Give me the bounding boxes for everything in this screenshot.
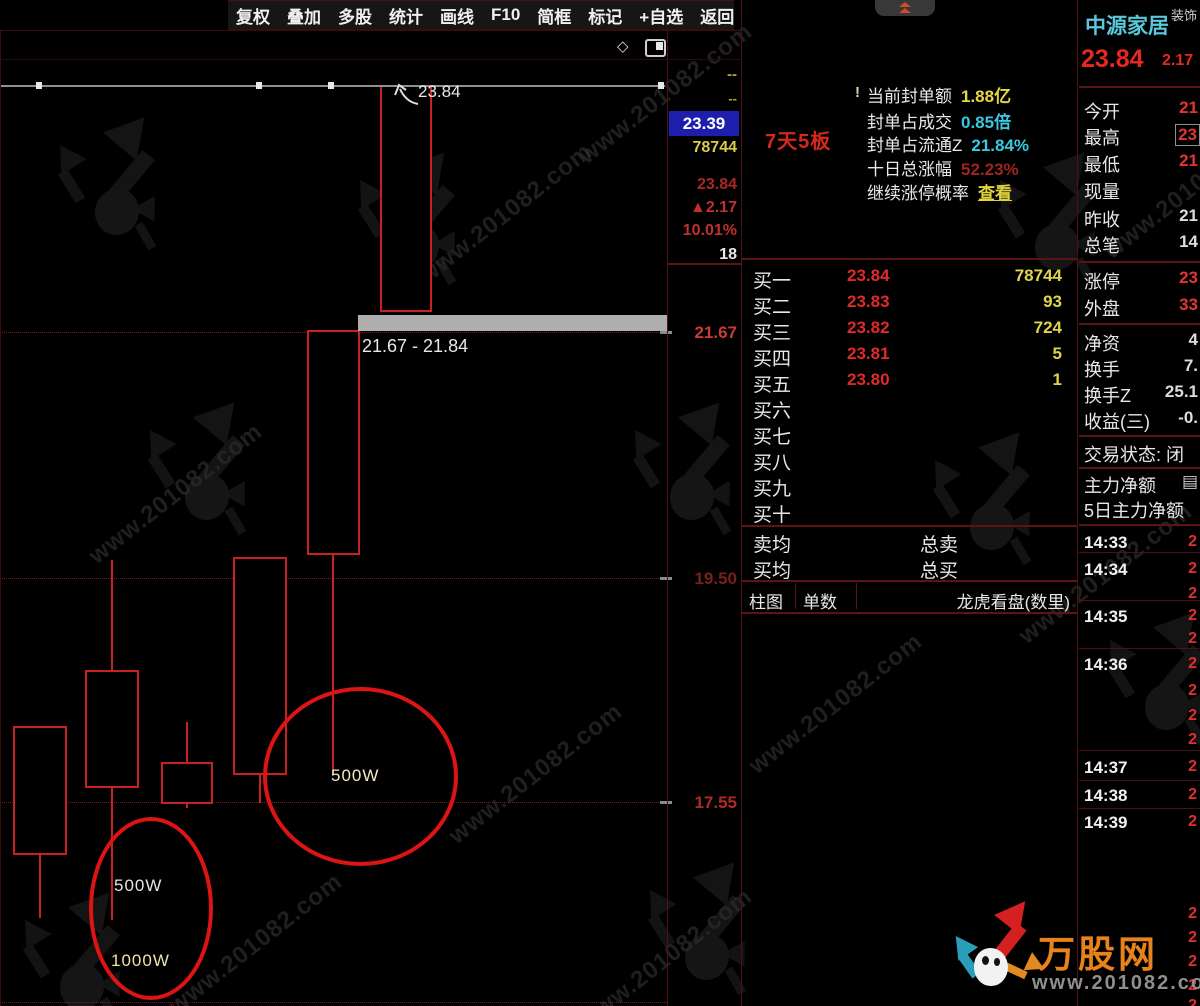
order-price: 23.82 [847,318,890,338]
order-volume: 724 [1034,318,1062,338]
tick-row[interactable]: 2 [1078,630,1200,654]
quote-value: 23 [1179,268,1198,288]
panel-border [0,30,1,1006]
info-label: 封单占成交 [867,113,952,132]
order-level-label: 买七 [753,422,791,449]
divider [742,580,1078,582]
quote-row-收益(三): 收益(三)-0. [1078,408,1200,432]
order-level-label: 买五 [753,370,791,397]
quote-label: 外盘 [1084,295,1120,321]
tab-order-count[interactable]: 单数 [803,588,837,613]
order-price: 23.81 [847,344,890,364]
strip-change: ▲2.17 [690,199,737,217]
candle-body[interactable] [307,330,360,555]
quote-value: 25.1 [1165,382,1198,402]
strip-price: 23.84 [697,176,737,194]
order-level-label: 买一 [753,266,791,293]
strip-count: 18 [719,246,737,264]
order-price: 23.80 [847,370,890,390]
tick-separator [1079,780,1200,781]
quote-label: 交易状态: 闭 [1084,441,1184,467]
collapse-panel-tab[interactable] [875,0,935,16]
site-logo-title: 万股网 [1038,924,1158,978]
order-book-panel: ! 7天5板 当前封单额1.88亿封单占成交0.85倍封单占流通Z21.84%十… [742,0,1078,1006]
tick-price: 2 [1188,731,1197,749]
quote-divider [1079,323,1200,325]
quote-value: 14 [1179,232,1198,252]
volume-annotation: 1000W [111,951,170,971]
tick-price: 2 [1188,607,1197,625]
tick-time: 14:36 [1084,655,1127,675]
menu-item-返回[interactable]: 返回 [700,3,734,28]
logo-mascot-icon [994,958,1000,966]
price-change: 2.17 [1162,52,1193,70]
quote-value: ▤ [1182,472,1198,492]
panel-border [1077,0,1078,1006]
order-row-买八[interactable]: 买八 [742,448,1078,474]
info-value: 1.88亿 [961,87,1011,106]
order-row-买十[interactable]: 买十 [742,500,1078,526]
axis-tick [660,577,672,580]
total-sell-label: 总卖 [920,530,958,557]
quote-panel: 中源家居 装饰 23.84 2.17 今开21最高23最低21现量昨收21总笔1… [1078,0,1200,1006]
quote-value: 33 [1179,295,1198,315]
quote-divider [1079,467,1200,469]
tick-row[interactable]: 14:372 [1078,758,1200,782]
menu-item-+自选[interactable]: +自选 [639,3,683,28]
order-level-label: 买八 [753,448,791,475]
quote-label: 5日主力净额 [1084,497,1184,523]
info-row-继续涨停概率: 继续涨停概率查看 [867,179,1012,204]
tick-time: 14:35 [1084,607,1127,627]
tick-price: 2 [1188,758,1197,776]
quote-value: 21 [1179,206,1198,226]
info-label: 当前封单额 [867,87,952,106]
tick-price: 2 [1188,813,1197,831]
order-level-label: 买三 [753,318,791,345]
info-label: 继续涨停概率 [867,184,969,203]
panel-border [741,0,742,1006]
quote-divider [1079,435,1200,437]
divider [742,258,1078,260]
tick-price: 2 [1188,682,1197,700]
order-row-买三[interactable]: 买三23.82724 [742,318,1078,344]
order-row-买二[interactable]: 买二23.8393 [742,292,1078,318]
tick-row[interactable]: 14:342 [1078,560,1200,584]
strip-dash-2: -- [728,91,737,106]
quote-row-昨收: 昨收21 [1078,206,1200,230]
order-row-买七[interactable]: 买七 [742,422,1078,448]
quote-row-外盘: 外盘33 [1078,295,1200,319]
axis-tick [660,801,672,804]
quote-label: 最高 [1084,124,1120,150]
quote-label: 收益(三) [1084,408,1150,434]
diamond-icon[interactable]: ◇ [617,37,629,55]
quote-label: 最低 [1084,151,1120,177]
strip-dash-1: -- [727,66,737,83]
quote-row-涨停: 涨停23 [1078,268,1200,292]
tick-price: 2 [1188,707,1197,725]
quote-row-最低: 最低21 [1078,151,1200,175]
quote-label: 涨停 [1084,268,1120,294]
menu-item-F10[interactable]: F10 [491,5,520,25]
line-handle[interactable] [256,82,262,89]
site-logo: 万股网 www.201082.com [938,896,1200,1006]
price-zone-label: 21.67 - 21.84 [362,336,468,357]
quote-value: 23 [1175,124,1200,146]
order-price: 23.83 [847,292,890,312]
divider [742,612,1078,614]
tab-divider [856,583,857,609]
quote-row-换手Z: 换手Z25.1 [1078,382,1200,406]
logo-arrow-teal-icon [946,929,978,961]
order-volume: 78744 [1015,266,1062,286]
quote-divider [1079,524,1200,526]
tick-separator [1079,600,1200,601]
last-price: 23.84 [1081,45,1144,74]
menu-item-叠加[interactable]: 叠加 [287,3,321,28]
order-row-买四[interactable]: 买四23.815 [742,344,1078,370]
info-value: 52.23% [961,160,1019,179]
logo-mascot-icon [982,956,989,965]
tick-time: 14:33 [1084,533,1127,553]
axis-price-label: 21.67 [694,323,737,343]
quote-label: 现量 [1084,178,1120,204]
industry-suffix: 装饰 [1171,5,1197,24]
quote-row-现量: 现量 [1078,178,1200,202]
line-handle[interactable] [36,82,42,89]
info-label: 封单占流通Z [867,136,962,155]
quote-value: 21 [1179,98,1198,118]
tick-separator [1079,750,1200,751]
order-volume: 5 [1053,344,1062,364]
quote-label: 换手Z [1084,382,1131,408]
order-level-label: 买四 [753,344,791,371]
tick-price: 2 [1188,533,1197,551]
quote-divider [1079,86,1200,88]
axis-price-label: 19.50 [694,569,737,589]
quote-row-净资: 净资4 [1078,330,1200,354]
info-value: 21.84% [971,136,1029,155]
tick-row[interactable]: 14:382 [1078,786,1200,810]
quote-label: 总笔 [1084,232,1120,258]
tick-price: 2 [1188,630,1197,648]
tick-row[interactable]: 14:392 [1078,813,1200,837]
line-handle[interactable] [658,82,664,89]
quote-row-换手: 换手7. [1078,356,1200,380]
tick-price: 2 [1188,560,1197,578]
menu-item-多股[interactable]: 多股 [338,3,372,28]
menu-item-画线[interactable]: 画线 [440,3,474,28]
candlestick-chart[interactable]: 23.84 21.67 - 21.84 500W 500W 1000W [0,30,667,1006]
quote-label: 今开 [1084,98,1120,124]
menu-item-复权[interactable]: 复权 [236,3,270,28]
tick-separator [1079,808,1200,809]
highlighted-price[interactable]: 23.39 [669,111,739,136]
line-handle[interactable] [328,82,334,89]
candle-body[interactable] [380,85,432,312]
divider [742,525,1078,527]
split-view-icon[interactable] [645,39,666,57]
order-level-label: 买九 [753,474,791,501]
quote-value: -0. [1178,408,1198,428]
order-level-label: 买十 [753,500,791,527]
quote-row-主力净额: 主力净额▤ [1078,472,1200,496]
tab-divider [795,583,796,609]
tick-time: 14:37 [1084,758,1127,778]
menu-item-简框[interactable]: 简框 [537,3,571,28]
menu-item-统计[interactable]: 统计 [389,3,423,28]
axis-price-label: 17.55 [694,793,737,813]
toolbar-bottom-border [0,30,742,31]
info-value: 0.85倍 [961,113,1011,132]
quote-value: 21 [1179,151,1198,171]
stock-name[interactable]: 中源家居 [1085,10,1169,40]
tick-row[interactable]: 14:332 [1078,533,1200,557]
quote-row-5日主力净额: 5日主力净额 [1078,497,1200,521]
candle-body[interactable] [161,762,213,804]
quote-divider [1079,261,1200,263]
order-row-买一[interactable]: 买一23.8478744 [742,266,1078,292]
tick-row[interactable]: 2 [1078,682,1200,706]
order-row-买五[interactable]: 买五23.801 [742,370,1078,396]
quote-label: 净资 [1084,330,1120,356]
candle-body[interactable] [13,726,67,855]
trading-app-window: www.201082.comwww.201082.comwww.201082.c… [0,0,1200,1006]
info-row-十日总涨幅: 十日总涨幅52.23% [867,155,1019,180]
tick-separator [1079,648,1200,649]
info-value[interactable]: 查看 [978,184,1012,203]
price-annotation-label: 23.84 [418,82,461,102]
tick-price: 2 [1188,655,1197,673]
tick-row[interactable]: 14:352 [1078,607,1200,631]
menu-item-标记[interactable]: 标记 [588,3,622,28]
volume-annotation: 500W [114,876,162,896]
tick-price: 2 [1188,786,1197,804]
tick-row[interactable]: 2 [1078,707,1200,731]
tick-separator [1079,552,1200,553]
quote-label: 昨收 [1084,206,1120,232]
strip-change-pct: 10.01% [683,222,737,240]
volume-annotation: 500W [331,766,379,786]
alert-icon: ! [855,84,860,101]
info-row-当前封单额: 当前封单额1.88亿 [867,82,1011,107]
tick-time: 14:39 [1084,813,1127,833]
tab-dragon-tiger[interactable]: 龙虎看盘(数里) [957,588,1070,613]
info-row-封单占流通Z: 封单占流通Z21.84% [867,131,1029,156]
tick-row[interactable]: 14:362 [1078,655,1200,679]
order-price: 23.84 [847,266,890,286]
logo-mascot-icon [974,948,1008,986]
order-volume: 93 [1043,292,1062,312]
candle-body[interactable] [85,670,139,788]
total-buy-label: 总买 [920,556,958,583]
tick-row[interactable]: 2 [1078,731,1200,755]
quote-row-总笔: 总笔14 [1078,232,1200,256]
logo-arrow-red-icon [994,891,1038,934]
panel-border [667,30,668,1006]
tab-bar-chart[interactable]: 柱图 [749,588,783,613]
quote-row-交易状态: 闭: 交易状态: 闭 [1078,441,1200,465]
drawn-circle-small[interactable] [89,817,213,1000]
limit-up-streak-badge: 7天5板 [765,125,831,154]
quote-value: 7. [1184,356,1198,376]
chevron-up-icon [899,8,911,13]
price-zone-bar[interactable] [358,315,667,331]
quote-value: 4 [1189,330,1198,350]
quote-label: 换手 [1084,356,1120,382]
axis-tick [660,331,672,334]
site-logo-url: www.201082.com [1032,972,1200,995]
quote-label: 主力净额 [1084,472,1156,498]
tick-time: 14:38 [1084,786,1127,806]
quote-row-今开: 今开21 [1078,98,1200,122]
info-row-封单占成交: 封单占成交0.85倍 [867,108,1011,133]
chevron-up-icon [899,2,911,7]
order-level-label: 买六 [753,396,791,423]
chart-gridline [0,1002,667,1003]
order-level-label: 买二 [753,292,791,319]
tick-row[interactable]: 2 [1078,585,1200,609]
order-row-买六[interactable]: 买六 [742,396,1078,422]
strip-divider [667,263,742,265]
buy-avg-label: 买均 [753,556,791,583]
quote-row-最高: 最高23 [1078,124,1200,148]
sell-avg-label: 卖均 [753,530,791,557]
info-label: 十日总涨幅 [867,160,952,179]
tick-time: 14:34 [1084,560,1127,580]
top-toolbar: 复权叠加多股统计画线F10简框标记+自选返回 [228,0,734,30]
order-volume: 1 [1053,370,1062,390]
strip-volume: 78744 [693,139,738,157]
price-axis-strip: -- -- 23.39 78744 23.84 ▲2.17 10.01% 18 … [667,30,742,1006]
chart-top-border [0,59,742,60]
order-row-买九[interactable]: 买九 [742,474,1078,500]
